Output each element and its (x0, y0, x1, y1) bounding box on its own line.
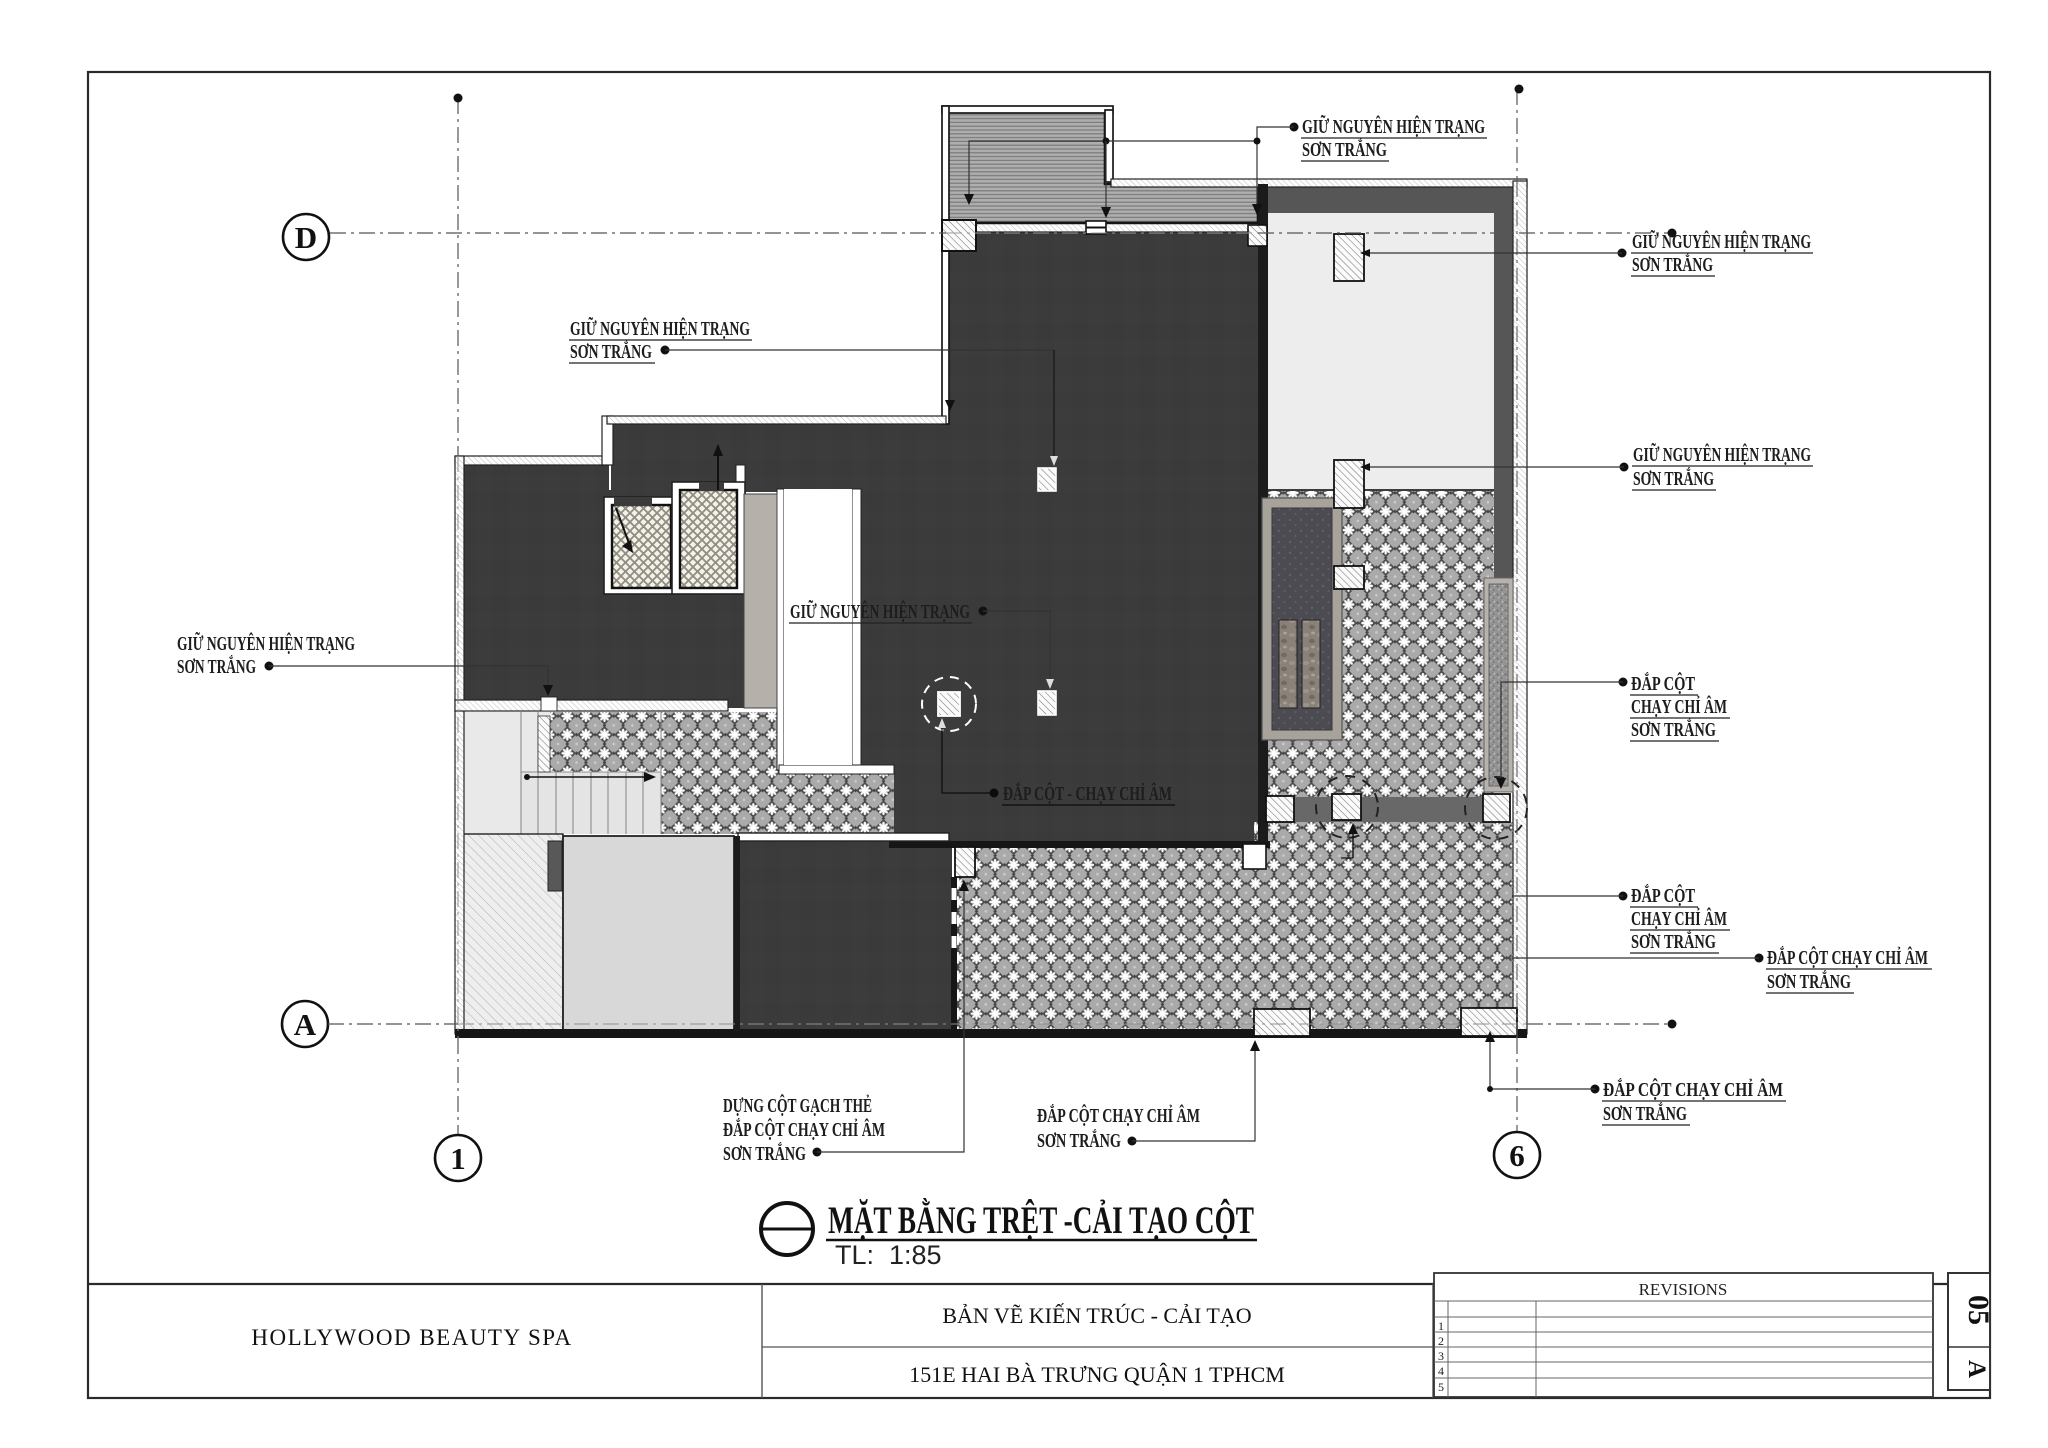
svg-text:GIỮ NGUYÊN HIỆN TRẠNG: GIỮ NGUYÊN HIỆN TRẠNG (1632, 229, 1811, 253)
svg-text:3: 3 (1438, 1349, 1444, 1363)
svg-text:MẶT BẰNG TRỆT -CẢI TẠO CỘT: MẶT BẰNG TRỆT -CẢI TẠO CỘT (828, 1197, 1254, 1242)
svg-text:ĐẮP CỘT CHẠY CHỈ ÂM: ĐẮP CỘT CHẠY CHỈ ÂM (1603, 1077, 1783, 1101)
svg-text:151E HAI BÀ TRƯNG QUẬN 1 TPHCM: 151E HAI BÀ TRƯNG QUẬN 1 TPHCM (909, 1362, 1285, 1387)
svg-text:4: 4 (1438, 1364, 1444, 1378)
svg-text:SƠN TRẮNG: SƠN TRẮNG (1767, 969, 1851, 993)
svg-text:SƠN TRẮNG: SƠN TRẮNG (177, 654, 256, 678)
svg-text:BẢN VẼ KIẾN TRÚC - CẢI TẠO: BẢN VẼ KIẾN TRÚC - CẢI TẠO (942, 1303, 1251, 1328)
svg-text:ĐẮP CỘT: ĐẮP CỘT (1631, 883, 1695, 907)
svg-text:SƠN TRẮNG: SƠN TRẮNG (1302, 137, 1387, 161)
svg-text:A: A (294, 1007, 317, 1042)
svg-text:A: A (1963, 1360, 1990, 1378)
svg-text:HOLLYWOOD BEAUTY SPA: HOLLYWOOD BEAUTY SPA (251, 1325, 572, 1350)
svg-text:1: 1 (1438, 1319, 1444, 1333)
svg-text:2: 2 (1438, 1334, 1444, 1348)
svg-text:SƠN TRẮNG: SƠN TRẮNG (1632, 252, 1713, 276)
svg-text:GIỮ NGUYÊN HIỆN TRẠNG: GIỮ NGUYÊN HIỆN TRẠNG (790, 599, 970, 623)
svg-text:CHẠY CHỈ ÂM: CHẠY CHỈ ÂM (1631, 694, 1727, 718)
svg-text:SƠN TRẮNG: SƠN TRẮNG (570, 339, 652, 363)
svg-text:SƠN TRẮNG: SƠN TRẮNG (1037, 1128, 1121, 1152)
svg-text:ĐẮP CỘT: ĐẮP CỘT (1631, 671, 1695, 695)
svg-text:SƠN TRẮNG: SƠN TRẮNG (1631, 929, 1716, 953)
svg-text:SƠN TRẮNG: SƠN TRẮNG (1633, 466, 1714, 490)
svg-text:SƠN TRẮNG: SƠN TRẮNG (1603, 1101, 1687, 1125)
svg-text:SƠN TRẮNG: SƠN TRẮNG (723, 1141, 806, 1165)
svg-text:D: D (295, 220, 317, 255)
svg-text:6: 6 (1509, 1138, 1525, 1173)
svg-text:05: 05 (1962, 1295, 1995, 1325)
svg-text:TL: 1:85: TL: 1:85 (835, 1240, 942, 1270)
svg-text:GIỮ NGUYÊN HIỆN TRẠNG: GIỮ NGUYÊN HIỆN TRẠNG (1633, 442, 1811, 466)
svg-text:GIỮ NGUYÊN HIỆN TRẠNG: GIỮ NGUYÊN HIỆN TRẠNG (1302, 114, 1485, 138)
svg-text:CHẠY CHỈ ÂM: CHẠY CHỈ ÂM (1631, 906, 1727, 930)
svg-text:GIỮ NGUYÊN HIỆN TRẠNG: GIỮ NGUYÊN HIỆN TRẠNG (177, 631, 355, 655)
svg-text:GIỮ NGUYÊN HIỆN TRẠNG: GIỮ NGUYÊN HIỆN TRẠNG (570, 316, 750, 340)
svg-text:REVISIONS: REVISIONS (1639, 1280, 1728, 1299)
svg-text:DỰNG CỘT GẠCH THẺ: DỰNG CỘT GẠCH THẺ (723, 1094, 872, 1117)
svg-text:ĐẮP CỘT - CHẠY CHỈ ÂM: ĐẮP CỘT - CHẠY CHỈ ÂM (1003, 781, 1172, 805)
svg-text:1: 1 (450, 1141, 466, 1176)
svg-text:ĐẮP CỘT CHẠY CHỈ ÂM: ĐẮP CỘT CHẠY CHỈ ÂM (723, 1117, 885, 1141)
svg-text:5: 5 (1438, 1380, 1444, 1394)
svg-text:SƠN TRẮNG: SƠN TRẮNG (1631, 717, 1716, 741)
svg-text:ĐẮP CỘT CHẠY CHỈ ÂM: ĐẮP CỘT CHẠY CHỈ ÂM (1037, 1103, 1200, 1127)
svg-text:ĐẮP CỘT CHẠY CHỈ ÂM: ĐẮP CỘT CHẠY CHỈ ÂM (1767, 945, 1928, 969)
